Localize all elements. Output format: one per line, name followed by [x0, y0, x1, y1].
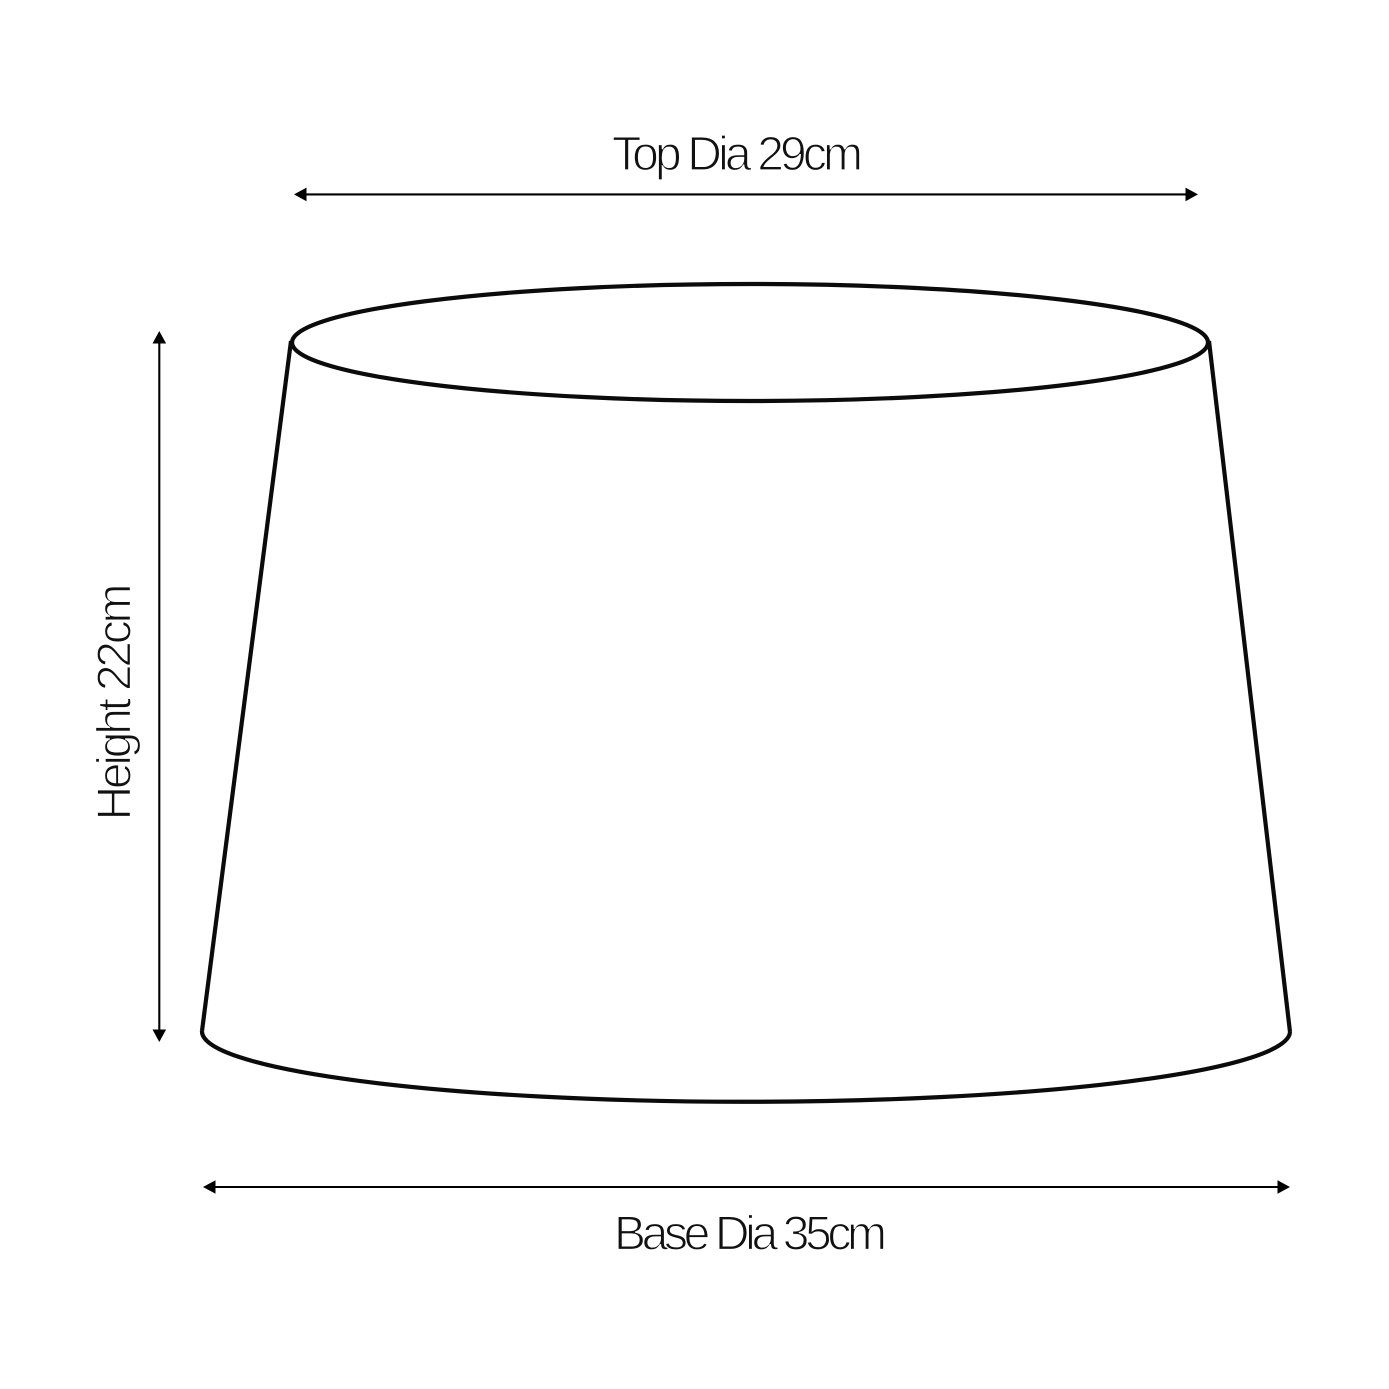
svg-text:Top Dia 29cm: Top Dia 29cm — [612, 128, 863, 181]
svg-text:Height 22cm: Height 22cm — [89, 584, 142, 821]
svg-text:Base Dia 35cm: Base Dia 35cm — [614, 1208, 887, 1261]
